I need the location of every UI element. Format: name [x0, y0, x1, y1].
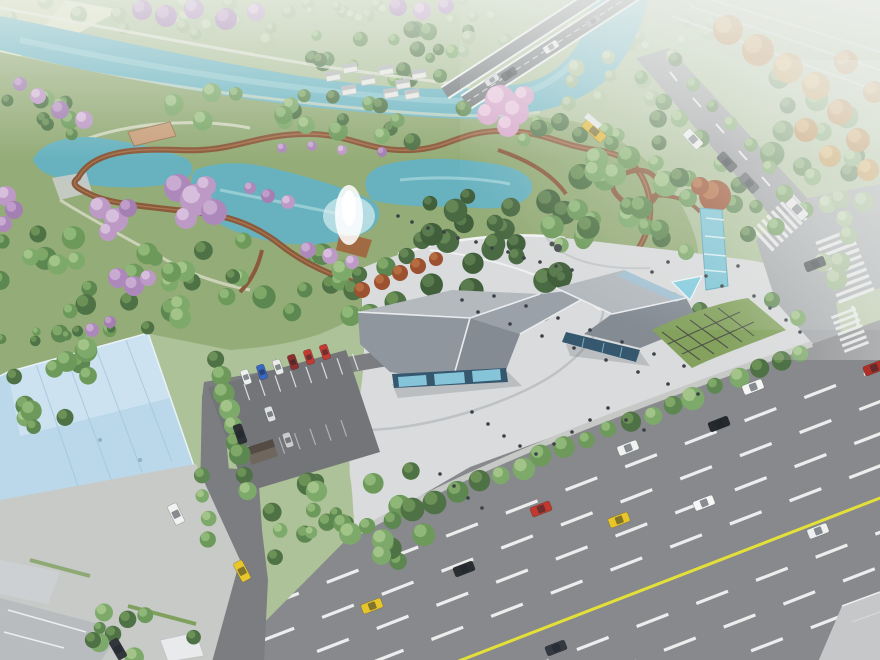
roof-vent — [138, 458, 142, 462]
tree-highlight — [245, 183, 252, 190]
tree-highlight — [202, 511, 211, 520]
tree-highlight — [346, 256, 354, 264]
roof-vent — [98, 438, 102, 442]
tree-highlight — [385, 512, 395, 522]
tree-highlight — [77, 295, 88, 306]
tree-highlight — [665, 397, 675, 407]
tree-highlight — [353, 267, 361, 275]
tree-highlight — [83, 282, 92, 291]
person — [606, 406, 610, 410]
tree-highlight — [95, 622, 102, 629]
tree-highlight — [375, 275, 384, 284]
tree-highlight — [430, 253, 438, 261]
tree-highlight — [86, 324, 94, 332]
person — [466, 496, 470, 500]
tree-highlight — [268, 550, 277, 559]
tree-highlight — [373, 530, 385, 542]
tree-highlight — [378, 258, 389, 269]
person — [426, 226, 430, 230]
tree-highlight — [138, 244, 150, 256]
tree-highlight — [323, 249, 332, 258]
tree-highlight — [126, 648, 137, 659]
tree-highlight — [201, 532, 210, 541]
tree-highlight — [402, 499, 415, 512]
tree-highlight — [73, 326, 79, 332]
tree-highlight — [282, 196, 290, 204]
tree-highlight — [752, 360, 763, 371]
tree-highlight — [64, 304, 72, 312]
person — [552, 442, 556, 446]
tree-highlight — [47, 361, 57, 371]
tree-highlight — [236, 233, 245, 242]
tree-highlight — [708, 378, 717, 387]
tree-highlight — [580, 433, 589, 442]
tree-highlight — [49, 255, 60, 266]
tree-highlight — [100, 224, 110, 234]
tree-highlight — [555, 437, 567, 449]
tree-highlight — [470, 471, 482, 483]
tree-highlight — [96, 604, 106, 614]
tree-highlight — [240, 483, 250, 493]
person — [480, 506, 484, 510]
tree-highlight — [120, 611, 130, 621]
tree-highlight — [333, 261, 345, 273]
person — [624, 418, 628, 422]
tree-highlight — [138, 608, 147, 617]
tree-highlight — [422, 224, 435, 237]
tree-highlight — [237, 468, 246, 477]
glass-panel — [398, 375, 427, 387]
haze-right — [720, 60, 880, 360]
tree-highlight — [208, 352, 217, 361]
tree-highlight — [514, 459, 526, 471]
tree-highlight — [63, 331, 68, 336]
tree-highlight — [33, 328, 38, 333]
tree-highlight — [601, 422, 610, 431]
person — [696, 392, 700, 396]
tree-highlight — [262, 190, 270, 198]
tree-highlight — [445, 200, 458, 213]
tree-highlight — [171, 308, 183, 320]
tree-highlight — [221, 400, 233, 412]
tree-highlight — [301, 243, 310, 252]
tree-highlight — [195, 468, 204, 477]
tree-highlight — [22, 401, 34, 413]
tree-highlight — [8, 370, 17, 379]
person — [396, 214, 400, 218]
tree-highlight — [683, 388, 696, 401]
person — [652, 352, 656, 356]
tree-highlight — [28, 420, 36, 428]
tree-highlight — [411, 259, 420, 268]
tree-highlight — [187, 631, 195, 639]
tree-highlight — [177, 208, 189, 220]
tree-highlight — [531, 446, 543, 458]
tree-highlight — [198, 177, 209, 188]
person — [604, 358, 608, 362]
tree-highlight — [110, 269, 121, 280]
tree-highlight — [400, 249, 409, 258]
tree-highlight — [31, 336, 37, 342]
tree-highlight — [422, 275, 435, 288]
tree-highlight — [264, 504, 274, 514]
tree-highlight — [320, 514, 330, 524]
person — [636, 370, 640, 374]
tree-highlight — [386, 292, 398, 304]
tree-highlight — [393, 266, 402, 275]
tree-highlight — [213, 367, 224, 378]
tree-highlight — [355, 283, 364, 292]
person — [642, 428, 646, 432]
fountain-jet — [342, 190, 356, 226]
tree-highlight — [307, 482, 319, 494]
tree-highlight — [493, 467, 503, 477]
tree-highlight — [64, 227, 77, 240]
tree-highlight — [91, 198, 103, 210]
tree-highlight — [414, 524, 427, 537]
tree-highlight — [298, 283, 306, 291]
tree-highlight — [171, 296, 182, 307]
tree-highlight — [126, 277, 137, 288]
person — [502, 434, 506, 438]
glass-panel — [472, 369, 501, 382]
tree-highlight — [81, 368, 91, 378]
tree-highlight — [364, 474, 375, 485]
aerial-park-rendering — [0, 0, 880, 660]
tree-highlight — [215, 384, 227, 396]
tree-highlight — [335, 515, 345, 525]
tree-highlight — [69, 253, 79, 263]
tree-highlight — [231, 445, 243, 457]
person — [620, 340, 624, 344]
person — [438, 472, 442, 476]
person — [410, 220, 414, 224]
glass-panel — [434, 372, 465, 385]
tree-highlight — [203, 200, 217, 214]
person — [456, 236, 460, 240]
tree-highlight — [163, 263, 174, 274]
person — [534, 452, 538, 456]
tree-highlight — [284, 304, 294, 314]
tree-highlight — [86, 633, 95, 642]
person — [666, 382, 670, 386]
tree-highlight — [195, 242, 205, 252]
tree-highlight — [341, 524, 353, 536]
tree-highlight — [52, 326, 62, 336]
tree-highlight — [424, 197, 432, 205]
rendering-stage — [0, 0, 880, 660]
tree-highlight — [331, 508, 338, 515]
person — [570, 430, 574, 434]
person — [682, 364, 686, 368]
tree-highlight — [106, 627, 115, 636]
tree-highlight — [622, 413, 633, 424]
tree-highlight — [307, 503, 315, 511]
tree-highlight — [58, 352, 69, 363]
tree-highlight — [142, 322, 149, 329]
tree-highlight — [274, 524, 282, 532]
tree-highlight — [120, 200, 130, 210]
person — [470, 410, 474, 414]
person — [540, 334, 544, 338]
tree-highlight — [448, 482, 460, 494]
tree-highlight — [6, 202, 16, 212]
tree-highlight — [254, 286, 267, 299]
tree-highlight — [58, 410, 67, 419]
tree-highlight — [197, 490, 204, 497]
tree-highlight — [424, 492, 437, 505]
person — [452, 484, 456, 488]
tree-highlight — [731, 369, 742, 380]
tree-highlight — [342, 306, 353, 317]
tree-highlight — [166, 175, 181, 190]
tree-highlight — [23, 249, 32, 258]
tree-highlight — [78, 339, 89, 350]
person — [588, 418, 592, 422]
tree-highlight — [646, 408, 656, 418]
tree-highlight — [227, 270, 235, 278]
person — [486, 422, 490, 426]
person — [572, 346, 576, 350]
tree-highlight — [306, 527, 313, 534]
tree-highlight — [360, 519, 369, 528]
person — [518, 444, 522, 448]
tree-highlight — [403, 463, 413, 473]
tree-highlight — [105, 317, 112, 324]
tree-highlight — [106, 209, 119, 222]
tree-highlight — [31, 226, 40, 235]
person — [442, 230, 446, 234]
tree-highlight — [373, 546, 384, 557]
tree-highlight — [141, 271, 150, 280]
tree-highlight — [219, 289, 229, 299]
